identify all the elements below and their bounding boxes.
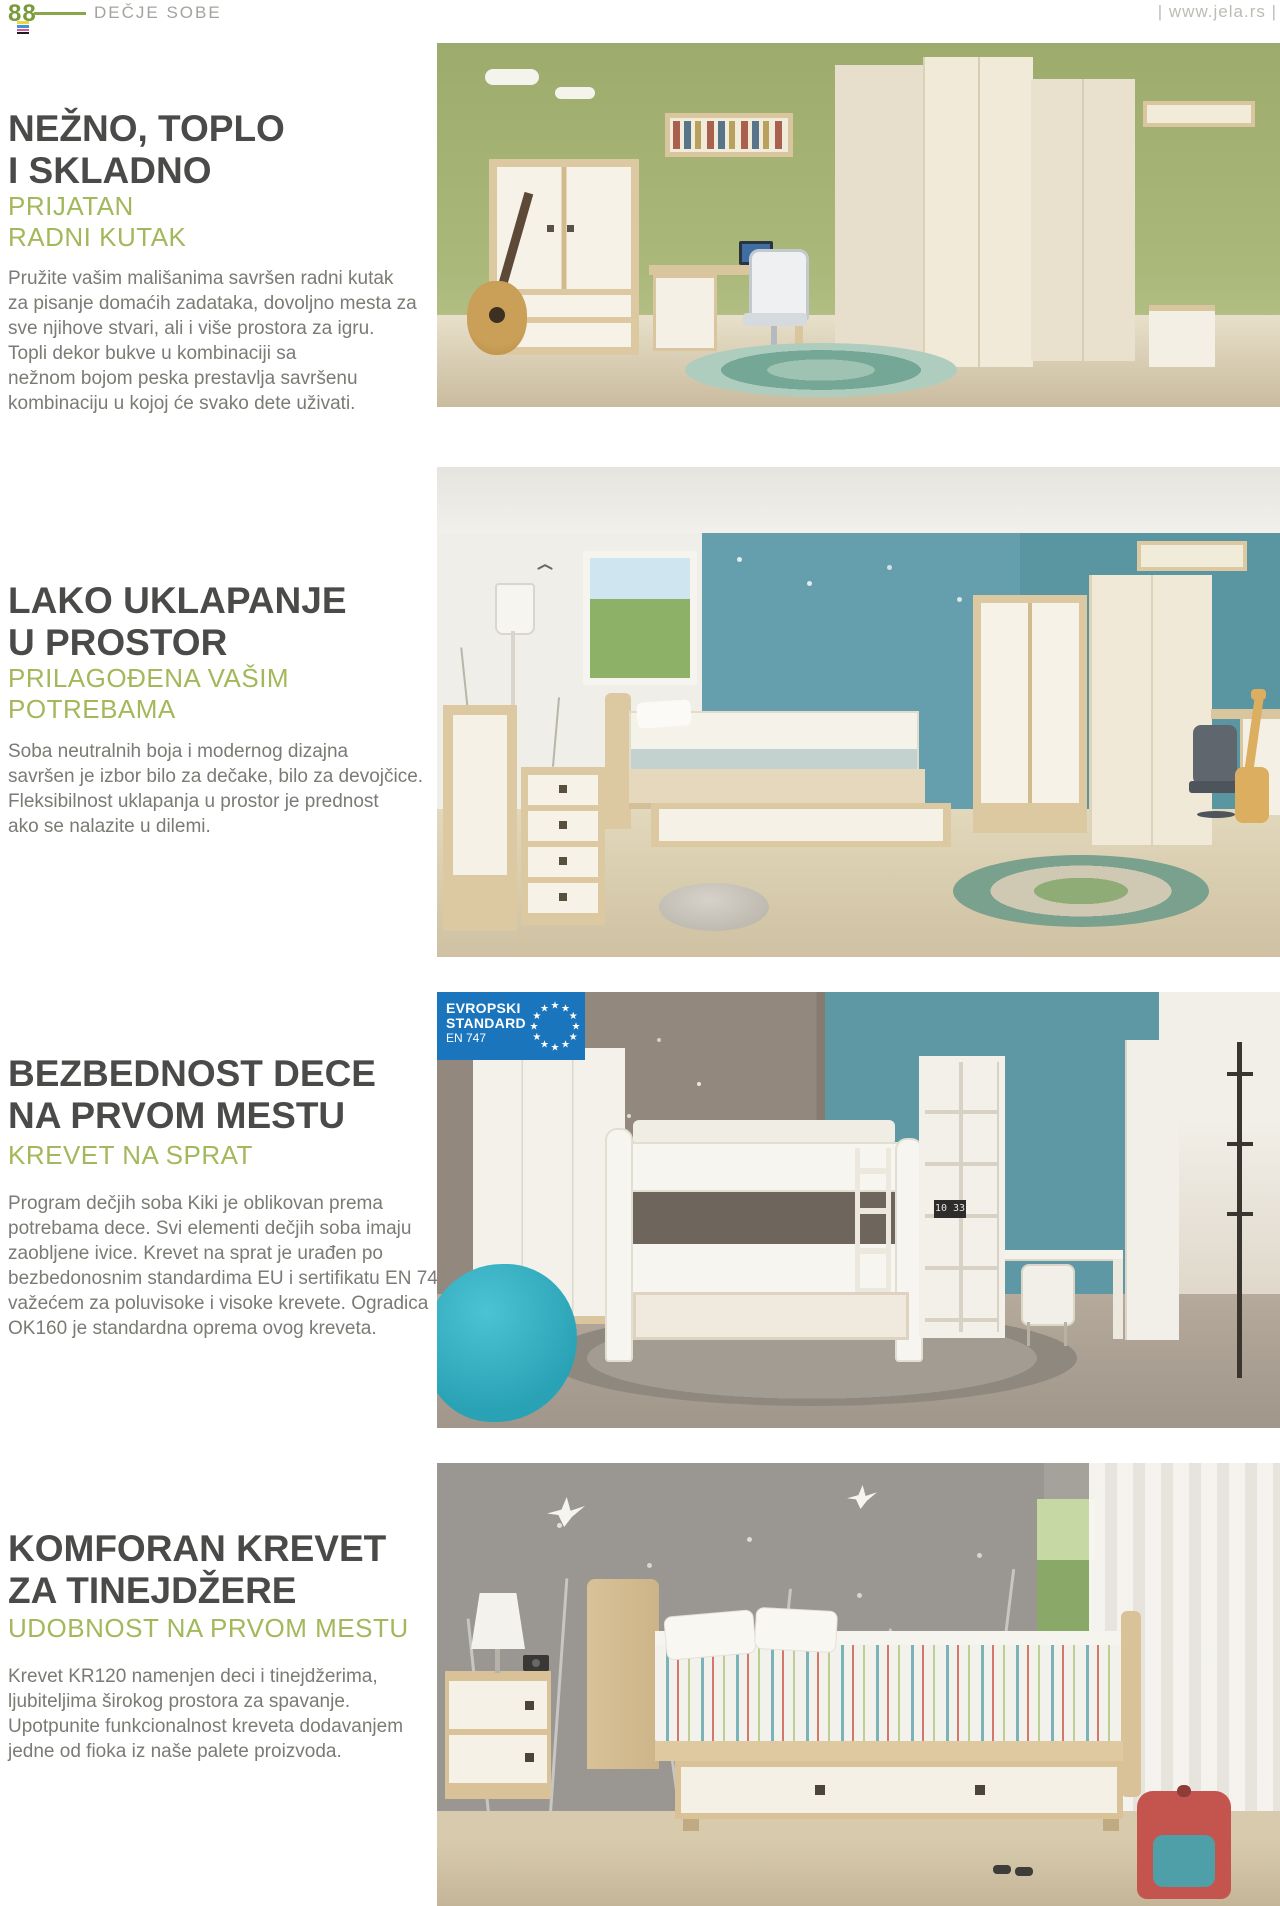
guitar-soundhole-shape bbox=[489, 307, 505, 323]
nightstand-shape bbox=[1149, 305, 1215, 367]
bird-decal bbox=[537, 563, 553, 571]
handles-shape bbox=[547, 225, 554, 232]
pullout-front-shape bbox=[659, 809, 943, 841]
backpack-pocket-shape bbox=[1153, 1835, 1215, 1887]
bed-legs-shape bbox=[683, 1819, 699, 1831]
paper-crane-decal bbox=[547, 1497, 585, 1527]
lamp-arms-shape bbox=[1227, 1072, 1253, 1272]
print-registration-mark-icon bbox=[17, 21, 29, 34]
wardrobe-doors-shape bbox=[981, 603, 1079, 803]
corner-wardrobe-side-shape bbox=[835, 65, 923, 361]
svg-text:★: ★ bbox=[572, 1022, 581, 1033]
desk-shape bbox=[1211, 709, 1280, 719]
section2-subheading: PRILAGOĐENA VAŠIM POTREBAMA bbox=[8, 663, 438, 725]
chair-legs-shape bbox=[1027, 1322, 1067, 1346]
pullout-bed-shape bbox=[651, 803, 951, 847]
backpack-strap-shape bbox=[1177, 1785, 1191, 1797]
chest-of-drawers-shape bbox=[521, 767, 605, 925]
dandelion-decal bbox=[552, 697, 560, 767]
eu-stars-icon: ★★ ★★ ★★ ★★ ★★ ★★ bbox=[526, 997, 584, 1055]
bed-side-rail-shape bbox=[655, 1741, 1123, 1761]
under-bed-drawer-shape bbox=[675, 1761, 1123, 1819]
corner-wardrobe-shape bbox=[1089, 575, 1212, 845]
cabinet-door-shape bbox=[453, 715, 507, 875]
headboard-shape bbox=[587, 1579, 659, 1769]
badge-line3: EN 747 bbox=[446, 1031, 526, 1046]
round-rug-shape bbox=[953, 855, 1209, 927]
nightstand-shape bbox=[445, 1671, 551, 1799]
section2-body: Soba neutralnih boja i modernog dizajna … bbox=[8, 739, 460, 839]
shelf-inner-shape bbox=[1147, 105, 1251, 123]
floor-lamp-pole-shape bbox=[1237, 1042, 1242, 1378]
svg-text:★: ★ bbox=[530, 1022, 539, 1033]
bookcase-shape bbox=[919, 1056, 1005, 1338]
svg-text:★: ★ bbox=[540, 1003, 549, 1014]
svg-text:★: ★ bbox=[569, 1011, 578, 1022]
headboard-shape bbox=[605, 693, 631, 829]
pillow-shape bbox=[636, 699, 692, 729]
photo-teen-bed-room bbox=[437, 1463, 1280, 1906]
desk-leg-shape bbox=[1113, 1259, 1123, 1339]
wardrobe-shape bbox=[973, 595, 1087, 833]
books-shape bbox=[673, 121, 785, 149]
svg-text:★: ★ bbox=[540, 1040, 549, 1051]
section3-body: Program dečjih soba Kiki je oblikovan pr… bbox=[8, 1191, 460, 1341]
wall-shelf-shape bbox=[665, 113, 793, 157]
chair-seat-shape bbox=[743, 313, 807, 326]
section1-heading: NEŽNO, TOPLO I SKLADNO bbox=[8, 108, 438, 192]
shoes-shape bbox=[993, 1865, 1011, 1874]
drawer-front-shape bbox=[681, 1767, 1117, 1813]
cloud-decal bbox=[485, 69, 539, 85]
nightstand-front-shape bbox=[449, 1681, 547, 1783]
table-lamp-shape bbox=[471, 1593, 525, 1649]
shelf-inner-shape bbox=[1141, 545, 1243, 567]
grass-decal bbox=[549, 1578, 569, 1818]
giraffe-head-shape bbox=[1251, 689, 1266, 700]
wardrobe-column-shape bbox=[1125, 1040, 1179, 1340]
under-bed-drawer-shape bbox=[633, 1292, 909, 1340]
pillow-shape bbox=[754, 1607, 838, 1653]
corner-wardrobe-front-shape bbox=[923, 57, 1033, 367]
footboard-shape bbox=[1121, 1611, 1141, 1797]
giraffe-body-shape bbox=[1235, 767, 1269, 823]
cabinet-shape bbox=[443, 705, 517, 931]
pillow-shape bbox=[663, 1609, 756, 1661]
category-label: DEČJE SOBE bbox=[94, 3, 222, 23]
website-url: | www.jela.rs | bbox=[1158, 2, 1277, 22]
handles-shape bbox=[525, 1701, 534, 1710]
wall-shelf-shape bbox=[1143, 101, 1255, 127]
bookcase-grid-shape bbox=[925, 1062, 999, 1332]
pouf-shape bbox=[659, 883, 769, 931]
eu-standard-badge: EVROPSKI STANDARD EN 747 ★★ ★★ ★★ ★★ ★★ … bbox=[437, 992, 585, 1060]
svg-text:★: ★ bbox=[551, 1043, 560, 1054]
digital-clock-decal: 10 33 bbox=[934, 1200, 966, 1218]
wall-shelf-shape bbox=[1137, 541, 1247, 571]
chair-base-shape bbox=[1197, 811, 1235, 818]
catalog-page: 88 DEČJE SOBE | www.jela.rs | NEŽNO, TOP… bbox=[0, 0, 1280, 1906]
photo-study-corner bbox=[437, 43, 1280, 407]
badge-line1: EVROPSKI bbox=[446, 1001, 526, 1016]
drawer-fronts-shape bbox=[528, 775, 598, 917]
dandelion-seed-decals bbox=[557, 1523, 562, 1528]
desk-pedestal-shape bbox=[653, 275, 717, 351]
svg-text:★: ★ bbox=[532, 1032, 541, 1043]
section4-subheading: UDOBNOST NA PRVOM MESTU bbox=[8, 1613, 438, 1644]
chair-back-shape bbox=[1193, 725, 1237, 785]
corner-wardrobe-right-shape bbox=[1031, 79, 1135, 361]
round-rug-shape bbox=[685, 343, 957, 397]
paper-crane-decal bbox=[847, 1485, 877, 1509]
guitar-body-shape bbox=[467, 281, 527, 355]
handles-shape bbox=[815, 1785, 825, 1795]
butterfly-decals bbox=[737, 557, 742, 562]
office-chair-shape bbox=[749, 249, 809, 321]
blanket-shape bbox=[631, 749, 917, 771]
bunk-end-panel-shape bbox=[605, 1128, 633, 1362]
desk-shape bbox=[1005, 1250, 1123, 1259]
header-rule bbox=[34, 12, 86, 15]
ceiling-shape bbox=[437, 467, 1280, 533]
section3-heading: BEZBEDNOST DECE NA PRVOM MESTU bbox=[8, 1053, 438, 1137]
floor-lamp-shape bbox=[495, 583, 535, 635]
handles-shape bbox=[559, 785, 567, 793]
lamp-stem-shape bbox=[495, 1649, 500, 1673]
backpack-shape bbox=[1137, 1791, 1231, 1899]
badge-line2: STANDARD bbox=[446, 1016, 526, 1031]
section2-heading: LAKO UKLAPANJE U PROSTOR bbox=[8, 580, 438, 664]
badge-text-block: EVROPSKI STANDARD EN 747 bbox=[446, 1001, 526, 1046]
svg-text:★: ★ bbox=[569, 1032, 578, 1043]
chair-back-shape bbox=[1021, 1264, 1075, 1326]
section3-subheading: KREVET NA SPRAT bbox=[8, 1140, 438, 1171]
cloud-decal bbox=[555, 87, 595, 99]
section4-heading: KOMFORAN KREVET ZA TINEJDŽERE bbox=[8, 1528, 438, 1612]
svg-text:★: ★ bbox=[551, 1001, 560, 1012]
section4-body: Krevet KR120 namenjen deci i tinejdžerim… bbox=[8, 1664, 460, 1764]
svg-text:★: ★ bbox=[561, 1040, 570, 1051]
section1-body: Pružite vašim mališanima savršen radni k… bbox=[8, 266, 460, 416]
photo-neutral-room bbox=[437, 467, 1280, 957]
window-shape bbox=[583, 551, 697, 685]
section1-subheading: PRIJATAN RADNI KUTAK bbox=[8, 191, 438, 253]
camera-lens-shape bbox=[532, 1659, 540, 1667]
camera-shape bbox=[523, 1655, 549, 1671]
